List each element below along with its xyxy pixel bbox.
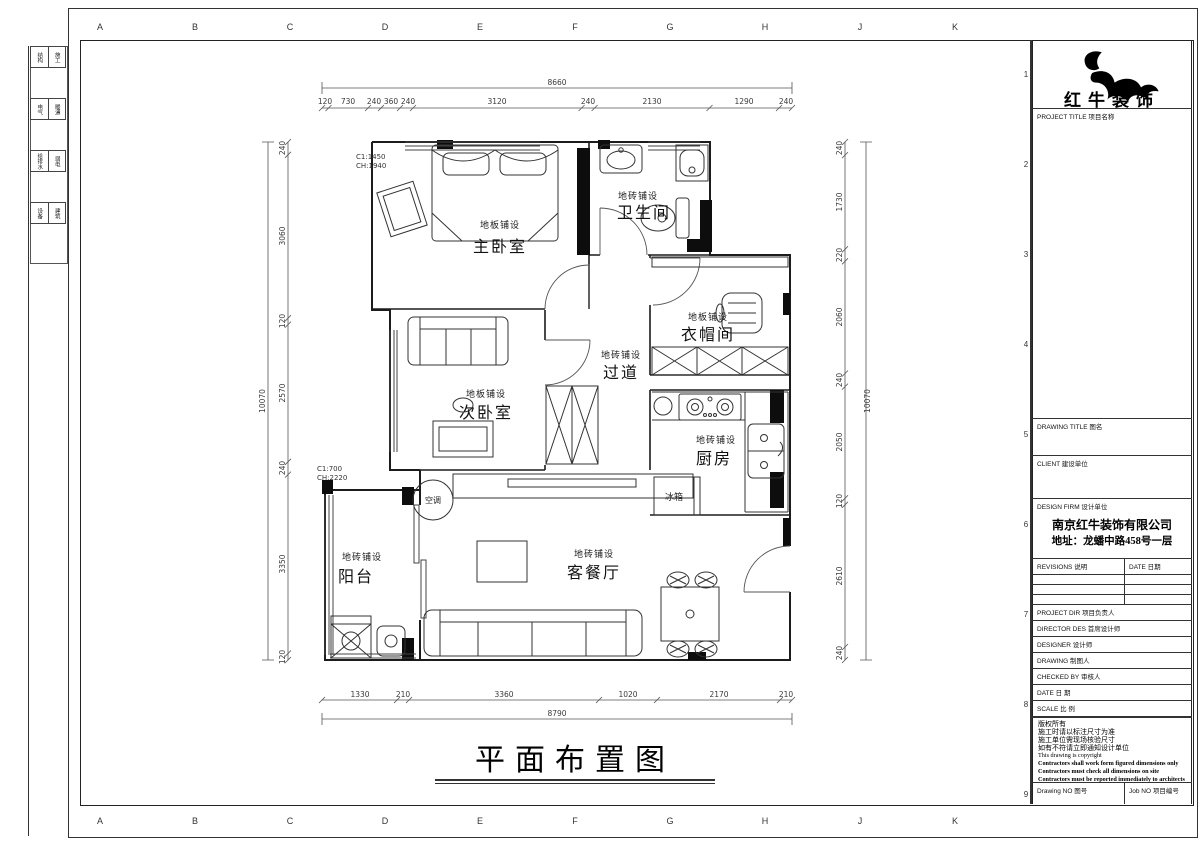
dim: 3120 [487, 97, 506, 106]
copyright-line: 如有不符请立即通知设计单位 [1038, 744, 1190, 752]
dim: 240 [779, 97, 794, 106]
copyright-line: 施工时请以标注尺寸为准 [1038, 728, 1190, 736]
dim: 220 [835, 248, 844, 263]
dim: 2050 [835, 432, 844, 451]
copyright-divider [1032, 716, 1192, 718]
dim: 210 [396, 690, 411, 699]
drawing-main-title: 平面布置图 [380, 735, 770, 779]
grid-letter-top: E [470, 22, 490, 32]
dim-total-right: 10070 [863, 389, 872, 413]
dim: 1290 [734, 97, 753, 106]
structural-columns [322, 140, 790, 660]
grid-number: 8 [1021, 700, 1031, 709]
grid-letter-top: K [945, 22, 965, 32]
discipline-label: 建筑 [49, 203, 66, 223]
revision-date-cell [1124, 594, 1192, 604]
dim: 3060 [278, 226, 287, 245]
room-name: 过道 [603, 364, 639, 382]
room-name: 次卧室 [459, 404, 513, 422]
dim: 2130 [642, 97, 661, 106]
dim: 2570 [278, 383, 287, 402]
master-rug [377, 181, 427, 236]
revision-date-cell [1124, 574, 1192, 584]
window-annotation: C1:1450 [356, 153, 386, 161]
coffee-table [477, 541, 527, 582]
room-name: 阳台 [338, 568, 374, 586]
drawing-title-row: DRAWING TITLE 图名 [1032, 418, 1192, 455]
discipline-label: 结构 [31, 47, 49, 67]
dim: 240 [278, 461, 287, 476]
dim: 120 [318, 97, 333, 106]
grid-letter-top: G [660, 22, 680, 32]
grid-number: 5 [1021, 430, 1031, 439]
grid-letter-bottom: B [185, 816, 205, 826]
grid-letter-bottom: H [755, 816, 775, 826]
discipline-row: 电气 暖通 [30, 98, 66, 120]
room-sub: 地板铺设 [688, 311, 728, 322]
grid-letter-bottom: E [470, 816, 490, 826]
title-underline-2 [435, 783, 715, 784]
drawing-sheet: A B C D E F G H J K A B C D E F G H J K … [0, 0, 1200, 844]
discipline-row: 设备 建筑 [30, 202, 66, 224]
dim: 1330 [350, 690, 369, 699]
staff-row: SCALE 比 例 [1032, 700, 1192, 716]
discipline-row: 结构 施工 [30, 46, 66, 68]
staff-row: DATE 日 期 [1032, 684, 1192, 700]
fridge-label: 冰箱 [665, 491, 683, 502]
dim: 210 [779, 690, 794, 699]
grid-letter-top: F [565, 22, 585, 32]
staff-row: PROJECT DIR 项目负责人 [1032, 604, 1192, 620]
room-sub: 地砖铺设 [601, 349, 641, 360]
dim: 360 [384, 97, 399, 106]
window-annotations: C1:1450 CH:1940 C1:700 CH:2220 [317, 153, 386, 482]
room-name: 主卧室 [473, 238, 527, 256]
client-row: CLIENT 建设单位 [1032, 455, 1192, 498]
dining-set [661, 572, 719, 657]
dim: 240 [835, 373, 844, 388]
design-firm-address: 地址：龙蟠中路458号一层 [1032, 533, 1192, 548]
room-name: 厨房 [696, 450, 732, 468]
corridor-wardrobe [546, 386, 598, 464]
grid-letter-bottom: J [850, 816, 870, 826]
room-name: 衣帽间 [681, 326, 735, 344]
room-sub: 地板铺设 [466, 388, 506, 399]
dim: 240 [835, 141, 844, 156]
grid-letter-top: C [280, 22, 300, 32]
grid-letter-bottom: D [375, 816, 395, 826]
staff-row: DIRECTOR DES 首席设计师 [1032, 620, 1192, 636]
dim: 120 [278, 314, 287, 329]
grid-number: 7 [1021, 610, 1031, 619]
ac-label: 空调 [425, 495, 441, 505]
dim: 2170 [709, 690, 728, 699]
grid-letter-bottom: C [280, 816, 300, 826]
copyright-line: Contractors must check all dimensions on… [1038, 768, 1190, 776]
copyright-line: This drawing is copyright [1038, 752, 1190, 760]
dim: 1020 [618, 690, 637, 699]
dim-total-bottom: 8790 [547, 709, 566, 718]
grid-letter-bottom: G [660, 816, 680, 826]
grid-letter-top: H [755, 22, 775, 32]
dim-total-top: 8660 [547, 78, 566, 87]
kitchen-sink [748, 424, 784, 478]
grid-number: 3 [1021, 250, 1031, 259]
project-title-row: PROJECT TITLE 项目名称 [1032, 108, 1192, 418]
living-sofa [424, 610, 642, 656]
discipline-label: 暖通 [49, 99, 66, 119]
discipline-label: 施工 [49, 47, 66, 67]
grid-number: 1 [1021, 70, 1031, 79]
design-firm-name: 南京红牛装饰有限公司 [1032, 516, 1192, 533]
tv-cabinet [453, 474, 693, 498]
room-sub: 地砖铺设 [618, 190, 658, 201]
room-sub: 地板铺设 [480, 219, 520, 230]
kitchen-stove [679, 394, 741, 420]
dim: 120 [835, 494, 844, 509]
dim: 3350 [278, 554, 287, 573]
window-annotation: C1:700 [317, 465, 342, 473]
copyright-block: 版权所有 施工时请以标注尺寸为准 施工单位需现场核验尺寸 如有不符请立即通知设计… [1038, 720, 1190, 784]
dim: 240 [367, 97, 382, 106]
discipline-label: 弱电 [49, 151, 66, 171]
washing-machine [331, 616, 371, 658]
grid-letter-bottom: A [90, 816, 110, 826]
discipline-label: 电气 [31, 99, 49, 119]
floor-plan: 冰箱 [250, 55, 900, 745]
staff-row: DESIGNER 设计师 [1032, 636, 1192, 652]
grid-number: 2 [1021, 160, 1031, 169]
dim: 730 [341, 97, 356, 106]
revision-date-cell [1124, 584, 1192, 594]
discipline-label: 设备 [31, 203, 49, 223]
grid-letter-top: B [185, 22, 205, 32]
grid-letter-top: J [850, 22, 870, 32]
job-no-cell: Job NO 项目编号 [1124, 782, 1192, 804]
grid-number: 4 [1021, 340, 1031, 349]
grid-letter-bottom: K [945, 816, 965, 826]
copyright-line: Contractors shall work form figured dime… [1038, 760, 1190, 768]
room-sub: 地砖铺设 [342, 551, 382, 562]
dim: 240 [835, 646, 844, 661]
copyright-line: 施工单位需现场核验尺寸 [1038, 736, 1190, 744]
doors [545, 208, 790, 592]
title-underline [435, 779, 715, 781]
dim: 2060 [835, 307, 844, 326]
sheet-left-edge [28, 46, 29, 836]
staff-row: CHECKED BY 审核人 [1032, 668, 1192, 684]
dim: 240 [401, 97, 416, 106]
dim: 2610 [835, 566, 844, 585]
date-header: DATE 日期 [1124, 558, 1192, 574]
discipline-row: 给排水 弱电 [30, 150, 66, 172]
staff-row: DRAWING 制图人 [1032, 652, 1192, 668]
room-name: 卫生间 [617, 204, 671, 222]
room-sub: 地砖铺设 [574, 548, 614, 559]
bathroom-sink [600, 145, 642, 173]
grid-letter-top: D [375, 22, 395, 32]
bedroom2-sofa [408, 317, 508, 365]
window-annotation: CH:2220 [317, 474, 347, 482]
room-labels: 地板铺设 主卧室 地砖铺设 卫生间 地板铺设 衣帽间 地砖铺设 过道 地板铺设 … [338, 190, 736, 586]
balcony-sink [377, 626, 405, 656]
window-annotation: CH:1940 [356, 162, 386, 170]
dim: 240 [581, 97, 596, 106]
room-sub: 地砖铺设 [696, 434, 736, 445]
grid-letter-top: A [90, 22, 110, 32]
copyright-line: 版权所有 [1038, 720, 1190, 728]
grid-letter-bottom: F [565, 816, 585, 826]
dim-total-left: 10070 [258, 389, 267, 413]
dim: 120 [278, 650, 287, 665]
room-name: 客餐厅 [567, 564, 621, 582]
dim: 240 [278, 141, 287, 156]
discipline-label: 给排水 [31, 151, 49, 171]
dim: 1730 [835, 192, 844, 211]
dim: 3360 [494, 690, 513, 699]
grid-number: 6 [1021, 520, 1031, 529]
grid-number: 9 [1021, 790, 1031, 799]
